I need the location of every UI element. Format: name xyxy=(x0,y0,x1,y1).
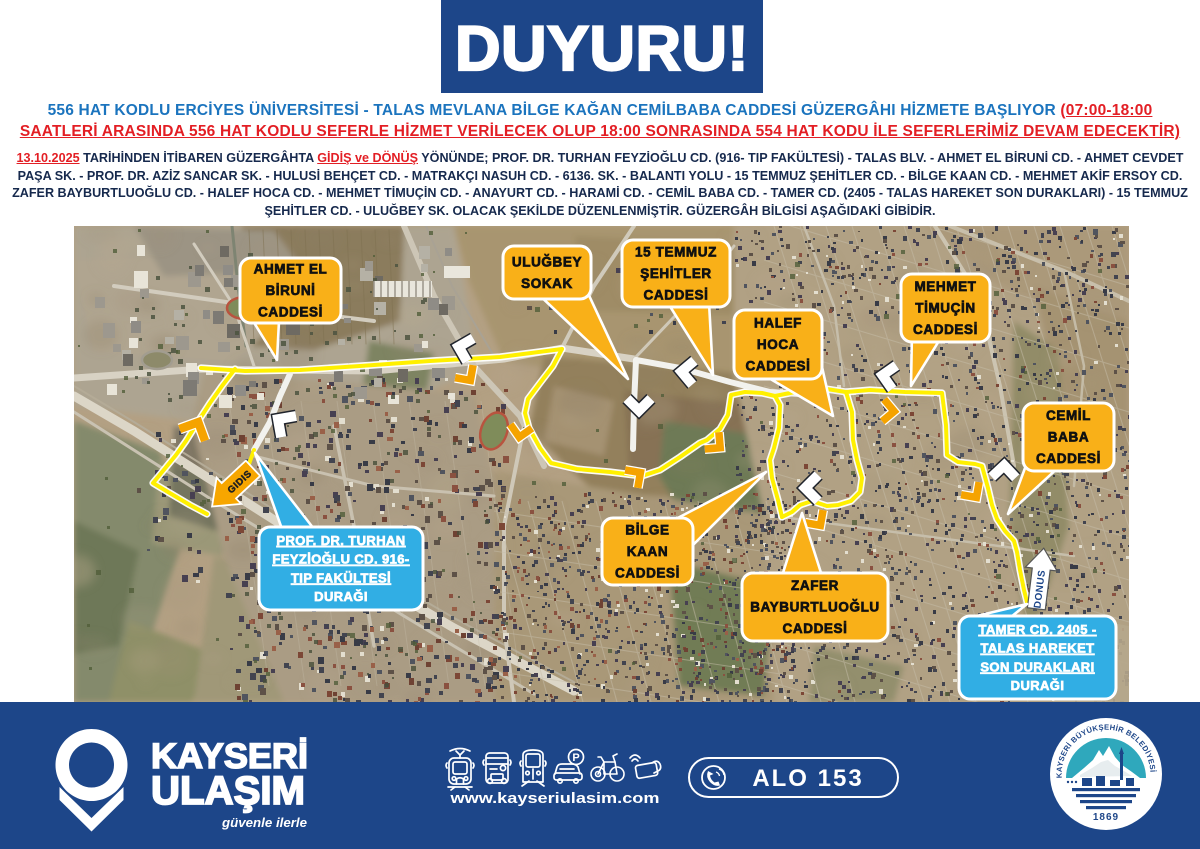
svg-text:www.kayseriulasim.com: www.kayseriulasim.com xyxy=(449,790,659,807)
svg-text:ULUĞBEY: ULUĞBEY xyxy=(512,255,582,270)
svg-text:BİRUNİ: BİRUNİ xyxy=(265,283,315,298)
svg-text:PROF. DR. TURHAN: PROF. DR. TURHAN xyxy=(276,533,405,548)
svg-text:TALAS HAREKET: TALAS HAREKET xyxy=(980,641,1094,656)
svg-text:DURAĞI: DURAĞI xyxy=(314,589,368,604)
svg-text:TAMER CD. 2405 -: TAMER CD. 2405 - xyxy=(978,622,1096,637)
svg-text:ŞEHİTLER: ŞEHİTLER xyxy=(640,266,712,281)
svg-text:ZAFER: ZAFER xyxy=(791,578,839,593)
svg-text:ULAŞIM: ULAŞIM xyxy=(151,769,305,813)
svg-text:CADDESİ: CADDESİ xyxy=(746,359,811,374)
svg-text:DURAĞI: DURAĞI xyxy=(1011,678,1065,693)
svg-text:1869: 1869 xyxy=(1093,812,1119,823)
svg-text:AHMET EL: AHMET EL xyxy=(254,262,328,277)
svg-text:KAAN: KAAN xyxy=(627,544,668,559)
svg-text:P: P xyxy=(572,752,579,764)
svg-text:SOKAK: SOKAK xyxy=(521,276,573,291)
svg-text:BAYBURTLUOĞLU: BAYBURTLUOĞLU xyxy=(750,600,880,615)
svg-text:SON DURAKLARI: SON DURAKLARI xyxy=(980,660,1094,675)
svg-text:CADDESİ: CADDESİ xyxy=(644,288,709,303)
svg-text:15 TEMMUZ: 15 TEMMUZ xyxy=(635,245,717,260)
svg-text:BABA: BABA xyxy=(1048,430,1089,445)
svg-text:TIP FAKÜLTESİ: TIP FAKÜLTESİ xyxy=(291,571,391,586)
svg-text:HOCA: HOCA xyxy=(757,337,799,352)
svg-text:BİLGE: BİLGE xyxy=(625,523,669,538)
svg-text:CADDESİ: CADDESİ xyxy=(783,621,848,636)
svg-text:CADDESİ: CADDESİ xyxy=(1036,451,1101,466)
svg-text:CEMİL: CEMİL xyxy=(1046,408,1091,423)
svg-text:MEHMET: MEHMET xyxy=(914,279,976,294)
svg-text:CADDESİ: CADDESİ xyxy=(258,305,323,320)
svg-text:TİMUÇİN: TİMUÇİN xyxy=(915,301,975,316)
svg-text:HALEF: HALEF xyxy=(754,316,802,331)
svg-text:güvenle ilerle: güvenle ilerle xyxy=(221,816,307,830)
svg-text:FEYZİOĞLU CD. 916-: FEYZİOĞLU CD. 916- xyxy=(272,552,409,567)
svg-text:ALO 153: ALO 153 xyxy=(752,765,863,792)
svg-text:CADDESİ: CADDESİ xyxy=(913,322,978,337)
svg-text:CADDESİ: CADDESİ xyxy=(615,566,680,581)
